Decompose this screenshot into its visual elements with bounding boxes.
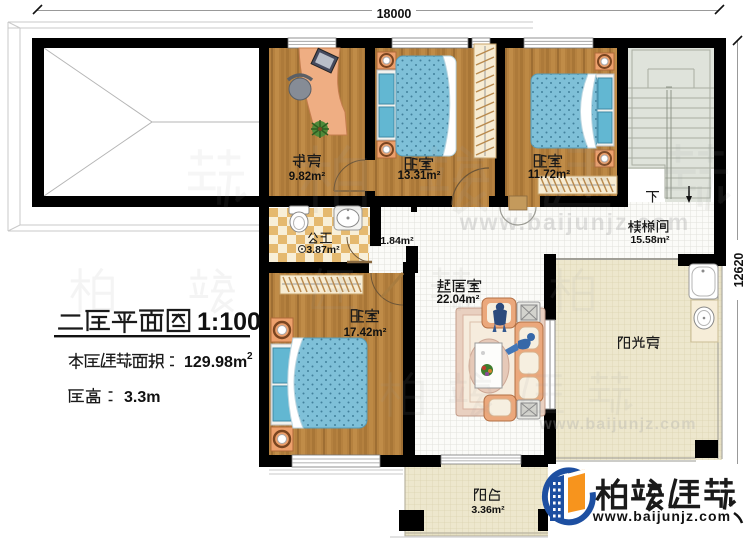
svg-text:3.87m²: 3.87m² xyxy=(306,244,340,256)
svg-text:www.baijunjz.com: www.baijunjz.com xyxy=(592,508,731,524)
svg-text:22.04m²: 22.04m² xyxy=(437,294,480,306)
svg-text:129.98m: 129.98m xyxy=(184,354,247,371)
svg-text:3.3m: 3.3m xyxy=(124,389,160,406)
svg-text:17.42m²: 17.42m² xyxy=(344,327,387,339)
svg-text:1:100: 1:100 xyxy=(197,308,261,336)
svg-text:1.84m²: 1.84m² xyxy=(380,235,414,247)
svg-text:2: 2 xyxy=(247,351,253,362)
svg-text:11.72m²: 11.72m² xyxy=(528,169,570,181)
svg-text:www.baijunjz.com: www.baijunjz.com xyxy=(538,416,696,433)
svg-text:13.31m²: 13.31m² xyxy=(398,170,441,182)
svg-text:9.82m²: 9.82m² xyxy=(289,171,326,183)
svg-text:15.58m²: 15.58m² xyxy=(630,234,670,246)
svg-text:18000: 18000 xyxy=(377,7,412,21)
svg-text:www.baijunjz.com: www.baijunjz.com xyxy=(459,209,691,235)
svg-text:3.36m²: 3.36m² xyxy=(471,504,505,516)
svg-text:12620: 12620 xyxy=(732,253,746,288)
